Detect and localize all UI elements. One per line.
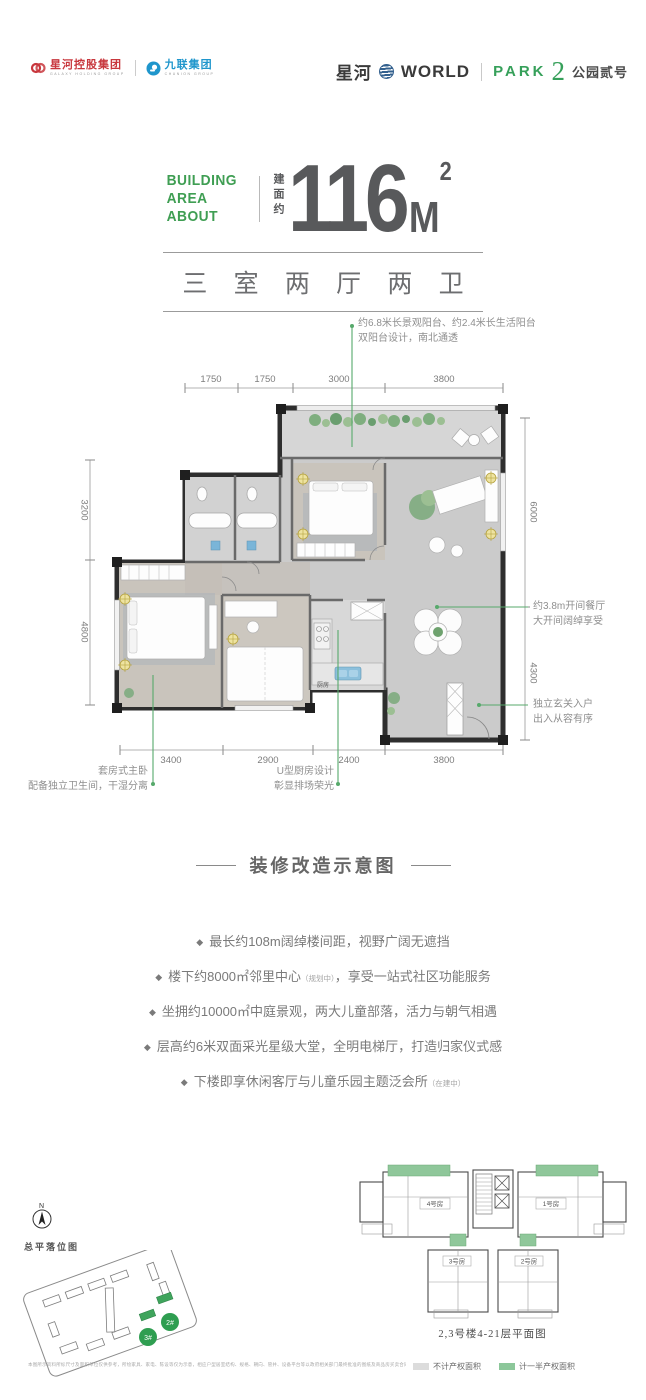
bullet-4: ◆层高约6米双面采光星级大堂，全明电梯厅，打造归家仪式感 [0, 1029, 646, 1064]
kitchen-label: 厨房 [317, 681, 329, 689]
annotation-dining-line1: 约3.8m开间餐厅 [533, 599, 605, 614]
julian-logo-icon [146, 61, 161, 76]
bullet-dot: ◆ [196, 937, 203, 947]
bullet-2-note: （规划中） [301, 974, 335, 983]
bullet-3-text: 坐拥约10000㎡中庭景观，两大儿童部落，活力与朝气相遇 [162, 1004, 497, 1019]
floorplate-walls [360, 1170, 626, 1312]
julian-logo-name: 九联集团 [165, 60, 215, 71]
bullet-dot: ◆ [155, 972, 162, 982]
bullet-3: ◆坐拥约10000㎡中庭景观，两大儿童部落，活力与朝气相遇 [0, 994, 646, 1029]
building-3-marker: 3# [139, 1328, 157, 1346]
annotation-kitchen-line1: U型厨房设计 [190, 764, 334, 779]
unit-label-4: 4号房 [427, 1199, 444, 1208]
legend-label-gray: 不计产权面积 [433, 1361, 481, 1372]
unit-floorplan-drawing: 厨房 [85, 395, 545, 755]
renovation-bullets: ◆最长约108m阔绰楼间距，视野广阔无遮挡 ◆楼下约8000㎡邻里中心（规划中）… [0, 924, 646, 1099]
svg-text:3#: 3# [144, 1335, 152, 1342]
dim-right-1: 6000 [528, 501, 539, 522]
floorplate-core [476, 1174, 509, 1214]
floorplate-details [362, 1172, 624, 1318]
unit-label-2: 2号房 [521, 1257, 538, 1266]
legend-item-green: 计一半产权面积 [499, 1361, 575, 1372]
dim-top-4: 3800 [433, 374, 454, 385]
building-area-headline: BUILDING AREA ABOUT 建面约 116 M 2 [163, 156, 483, 242]
bullet-2: ◆楼下约8000㎡邻里中心（规划中），享受一站式社区功能服务 [0, 959, 646, 994]
annotation-kitchen-line2: 彰显排场荣光 [190, 779, 334, 794]
building-2-marker: 2# [161, 1313, 179, 1331]
title-rule-right [411, 865, 451, 866]
annotation-master-line2: 配备独立卫生间，干湿分离 [0, 779, 148, 794]
galaxy-logo-icon [30, 60, 46, 76]
bullet-dot: ◆ [181, 1077, 188, 1087]
area-label-en-line2: AREA ABOUT [167, 190, 250, 226]
renovation-section: 装修改造示意图 ◆最长约108m阔绰楼间距，视野广阔无遮挡 ◆楼下约8000㎡邻… [0, 852, 646, 1102]
layout-title-band: 三 室 两 厅 两 卫 [163, 252, 483, 312]
dim-left-1: 3200 [79, 499, 90, 520]
title-rule-left [196, 865, 236, 866]
brand-divider [481, 63, 482, 81]
bedroom-2 [297, 481, 377, 557]
area-unit: M [409, 194, 440, 242]
svg-text:N: N [39, 1203, 44, 1210]
dim-right-2: 4300 [528, 662, 539, 683]
annotation-balcony: 约6.8米长景观阳台、约2.4米长生活阳台 双阳台设计，南北通透 [358, 316, 536, 346]
brand-park-number: 2 [551, 58, 565, 85]
area-divider [259, 176, 260, 222]
bullet-4-text: 层高约6米双面采光星级大堂，全明电梯厅，打造归家仪式感 [157, 1039, 502, 1054]
julian-group-logo: 九联集团 CHUNION GROUP [146, 60, 215, 77]
siteplan-buildings [40, 1259, 179, 1361]
bullet-1: ◆最长约108m阔绰楼间距，视野广阔无遮挡 [0, 924, 646, 959]
brand-galaxy-cn: 星河 [336, 59, 372, 84]
legend-label-green: 计一半产权面积 [519, 1361, 575, 1372]
brand-park: PARK [493, 63, 546, 80]
annotation-foyer: 独立玄关入户 出入从容有序 [533, 697, 593, 727]
galaxy-holding-logo: 星河控股集团 GALAXY HOLDING GROUP [30, 60, 125, 77]
floorplate-green-areas [388, 1165, 598, 1246]
legend-swatch-gray [413, 1363, 429, 1370]
bullet-5: ◆下楼即享休闲客厅与儿童乐园主题泛会所（在建中） [0, 1064, 646, 1099]
annotation-kitchen: U型厨房设计 彰显排场荣光 [190, 764, 334, 794]
area-number: 116 [288, 156, 405, 242]
layout-title: 三 室 两 厅 两 卫 [172, 271, 473, 298]
annotation-foyer-line1: 独立玄关入户 [533, 697, 593, 712]
area-label-cn: 建面约 [270, 173, 286, 225]
area-value: 116 M 2 [288, 156, 452, 242]
poster-page: 星河控股集团 GALAXY HOLDING GROUP 九联集团 CHUNION… [0, 0, 646, 1400]
dim-top-1: 1750 [200, 374, 221, 385]
julian-logo-sub: CHUNION GROUP [165, 73, 215, 77]
galaxy-logo-name: 星河控股集团 [50, 60, 125, 71]
area-unit-sup: 2 [440, 158, 452, 184]
galaxy-logo-sub: GALAXY HOLDING GROUP [50, 73, 125, 77]
dim-top-2: 1750 [254, 374, 275, 385]
annotation-dining: 约3.8m开间餐厅 大开间阔绰享受 [533, 599, 605, 629]
annotation-foyer-line2: 出入从容有序 [533, 712, 593, 727]
annotation-master: 套房式主卧 配备独立卫生间，干湿分离 [0, 764, 148, 794]
bullet-1-text: 最长约108m阔绰楼间距，视野广阔无遮挡 [209, 934, 450, 949]
annotation-dining-line2: 大开间阔绰享受 [533, 614, 605, 629]
brand-park-cn: 公园贰号 [572, 62, 628, 81]
bullet-5-note: （在建中） [428, 1079, 466, 1088]
annotation-balcony-line1: 约6.8米长景观阳台、约2.4米长生活阳台 [358, 316, 536, 331]
bullet-2-post: ，享受一站式社区功能服务 [335, 969, 491, 984]
svg-text:2#: 2# [166, 1320, 174, 1327]
dim-left-2: 4800 [79, 621, 90, 642]
dim-bottom-4: 3800 [433, 755, 454, 766]
logo-divider [135, 60, 136, 76]
globe-icon [379, 64, 394, 79]
disclaimer-text: 本图所示资料所标尺寸及面积单位仅供参考，所绘家具、家电、陈设等仅为示意，相应户型… [28, 1362, 406, 1368]
dim-bottom-3: 2400 [338, 755, 359, 766]
developer-logos: 星河控股集团 GALAXY HOLDING GROUP 九联集团 CHUNION… [30, 60, 214, 77]
siteplan-map: 2# 3# [22, 1250, 202, 1380]
unit-label-1: 1号房 [543, 1199, 560, 1208]
dim-top-3: 3000 [328, 374, 349, 385]
floorplate-diagram: 4号房 1号房 3号房 2号房 [348, 1142, 638, 1327]
bullet-5-text: 下楼即享休闲客厅与儿童乐园主题泛会所 [194, 1074, 428, 1089]
floorplate-caption: 2,3号楼4-21层平面图 [350, 1326, 635, 1341]
dim-bottom-1: 3400 [160, 755, 181, 766]
area-label-en: BUILDING AREA ABOUT [167, 172, 250, 226]
bullet-2-text: 楼下约8000㎡邻里中心 [168, 969, 301, 984]
unit-label-3: 3号房 [449, 1257, 466, 1266]
compass-icon: N [30, 1200, 54, 1232]
annotation-balcony-line2: 双阳台设计，南北通透 [358, 331, 536, 346]
bullet-dot: ◆ [144, 1042, 151, 1052]
legend-item-gray: 不计产权面积 [413, 1361, 481, 1372]
legend-swatch-green [499, 1363, 515, 1370]
floorplate-unit-labels: 4号房 1号房 3号房 2号房 [420, 1198, 566, 1266]
bullet-dot: ◆ [149, 1007, 156, 1017]
renovation-title-row: 装修改造示意图 [0, 852, 646, 878]
legend: 不计产权面积 计一半产权面积 [413, 1361, 575, 1372]
annotation-master-line1: 套房式主卧 [0, 764, 148, 779]
project-brand: 星河 WORLD PARK 2 公园贰号 [336, 58, 628, 85]
floorplan-section: 厨房 [0, 315, 646, 815]
brand-world: WORLD [401, 62, 470, 82]
balcony-window [297, 406, 495, 411]
area-label-en-line1: BUILDING [167, 172, 250, 190]
renovation-title: 装修改造示意图 [250, 852, 397, 878]
